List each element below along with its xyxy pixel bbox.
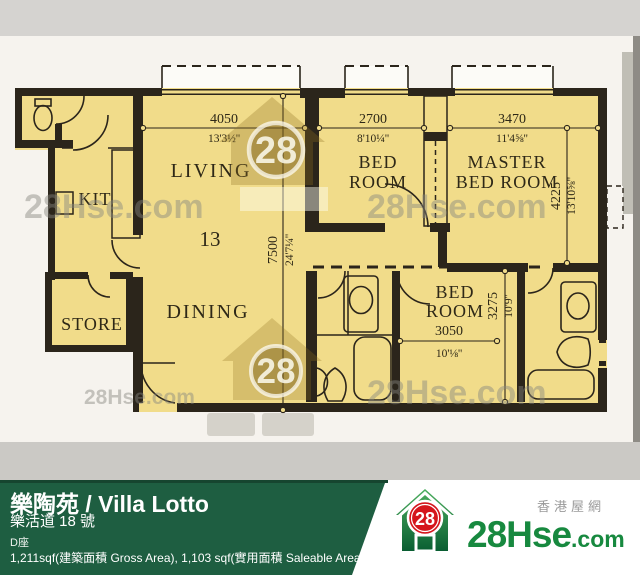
watermark-text: 28Hse.com <box>367 188 547 226</box>
room-label-master-bedroom: MASTER <box>467 152 546 172</box>
balconies <box>162 66 553 88</box>
watermark-text: 28Hse.com <box>367 374 547 412</box>
room-label-bedroom2: BED <box>436 282 475 302</box>
property-address: 樂活道 18 號 <box>10 510 95 531</box>
brand-tld: .com <box>571 526 625 552</box>
room-label-store: STORE <box>61 314 123 334</box>
dim-bed1-width-ft: 8'10¼'' <box>357 133 389 145</box>
watermark-text: 28Hse.com <box>84 386 195 409</box>
dim-bed2-depth-ft: 10'9'' <box>503 294 515 317</box>
dim-bed2-width-mm: 3050 <box>435 324 463 339</box>
unit-number: 13 <box>200 227 221 251</box>
watermark-text: 28Hse.com <box>24 188 204 226</box>
watermark-badge: 28 <box>255 130 297 172</box>
brand-house-icon: 28 <box>395 488 455 552</box>
dim-bed1-width-mm: 2700 <box>359 112 387 127</box>
room-label-bedroom2: ROOM <box>426 301 484 321</box>
room-label-dining: DINING <box>166 301 249 323</box>
dim-master-width-ft: 11'4⅝'' <box>496 133 528 145</box>
dim-bed2-depth-mm: 3275 <box>486 292 501 320</box>
floorplan-screenshot: 4050 13'3½'' 2700 8'10¼'' 3470 11'4⅝'' 7… <box>0 0 640 575</box>
footer-accent-line <box>0 480 388 483</box>
room-label-bedroom1: BED <box>359 152 398 172</box>
dim-master-depth-ft: 13'10⅝'' <box>566 177 578 215</box>
dim-bed2-width-ft: 10'⅛'' <box>436 348 462 360</box>
brand-wordmark: 28Hse.com <box>467 514 625 556</box>
dim-living-depth-ft: 24'7¼'' <box>284 234 296 266</box>
site-brand: 28 28Hse.com 香港屋網 <box>395 488 640 573</box>
site-name-chinese: 香港屋網 <box>537 496 605 515</box>
dim-master-width-mm: 3470 <box>498 112 526 127</box>
brand-badge: 28 <box>415 509 435 529</box>
dim-living-depth-mm: 7500 <box>266 236 281 264</box>
dim-living-width-mm: 4050 <box>210 112 238 127</box>
watermark-badge: 28 <box>257 352 296 391</box>
brand-name: 28Hse <box>467 514 571 555</box>
property-block: D座 <box>10 534 29 550</box>
property-area: 1,211sqf(建築面積 Gross Area), 1,103 sqf(實用面… <box>10 549 365 566</box>
